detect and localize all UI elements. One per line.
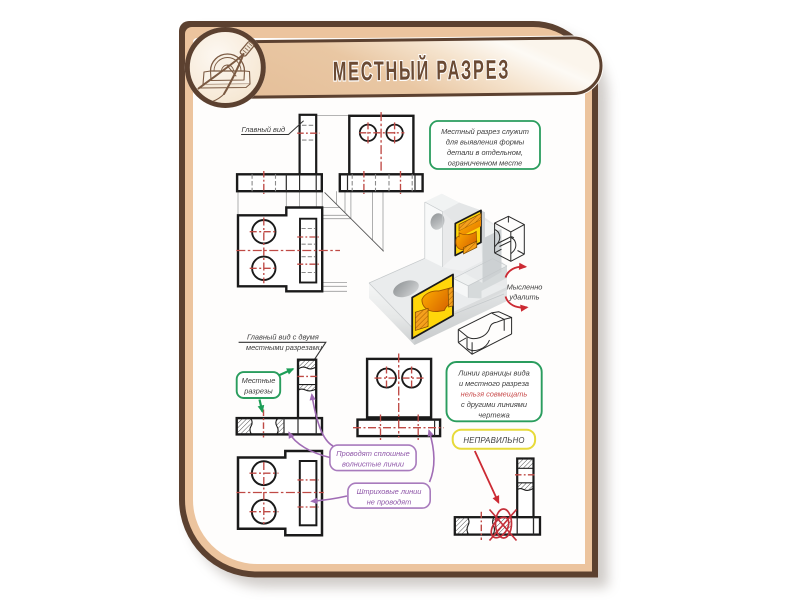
svg-text:МЕСТНЫЙ РАЗРЕЗ: МЕСТНЫЙ РАЗРЕЗ bbox=[333, 54, 511, 86]
svg-text:Штриховые линии: Штриховые линии bbox=[357, 487, 422, 496]
svg-text:чертежа: чертежа bbox=[478, 411, 509, 420]
svg-text:и местного разреза: и местного разреза bbox=[459, 379, 529, 388]
svg-text:для выявления формы: для выявления формы bbox=[446, 138, 525, 147]
svg-text:разрезы: разрезы bbox=[243, 387, 273, 396]
svg-text:Местный разрез служит: Местный разрез служит bbox=[441, 127, 529, 136]
svg-text:с другими линиями: с другими линиями bbox=[461, 400, 527, 409]
svg-text:НЕПРАВИЛЬНО: НЕПРАВИЛЬНО bbox=[463, 436, 524, 445]
svg-text:Главный вид с двумя: Главный вид с двумя bbox=[247, 333, 319, 342]
svg-text:удалить: удалить bbox=[508, 293, 539, 302]
svg-text:ограниченном месте: ограниченном месте bbox=[448, 159, 523, 168]
svg-text:не проводят: не проводят bbox=[367, 498, 412, 507]
svg-text:Местные: Местные bbox=[242, 376, 276, 385]
svg-text:Линии границы вида: Линии границы вида bbox=[457, 369, 529, 378]
svg-text:Мысленно: Мысленно bbox=[507, 283, 543, 292]
svg-text:нельзя совмещать: нельзя совмещать bbox=[461, 390, 528, 399]
svg-text:Проводят сплошные: Проводят сплошные bbox=[336, 449, 409, 458]
svg-text:волнистые линии: волнистые линии bbox=[342, 460, 404, 469]
svg-text:Главный вид: Главный вид bbox=[242, 125, 286, 134]
svg-text:местными разрезами: местными разрезами bbox=[246, 343, 322, 352]
svg-text:детали в отдельном,: детали в отдельном, bbox=[447, 148, 523, 157]
